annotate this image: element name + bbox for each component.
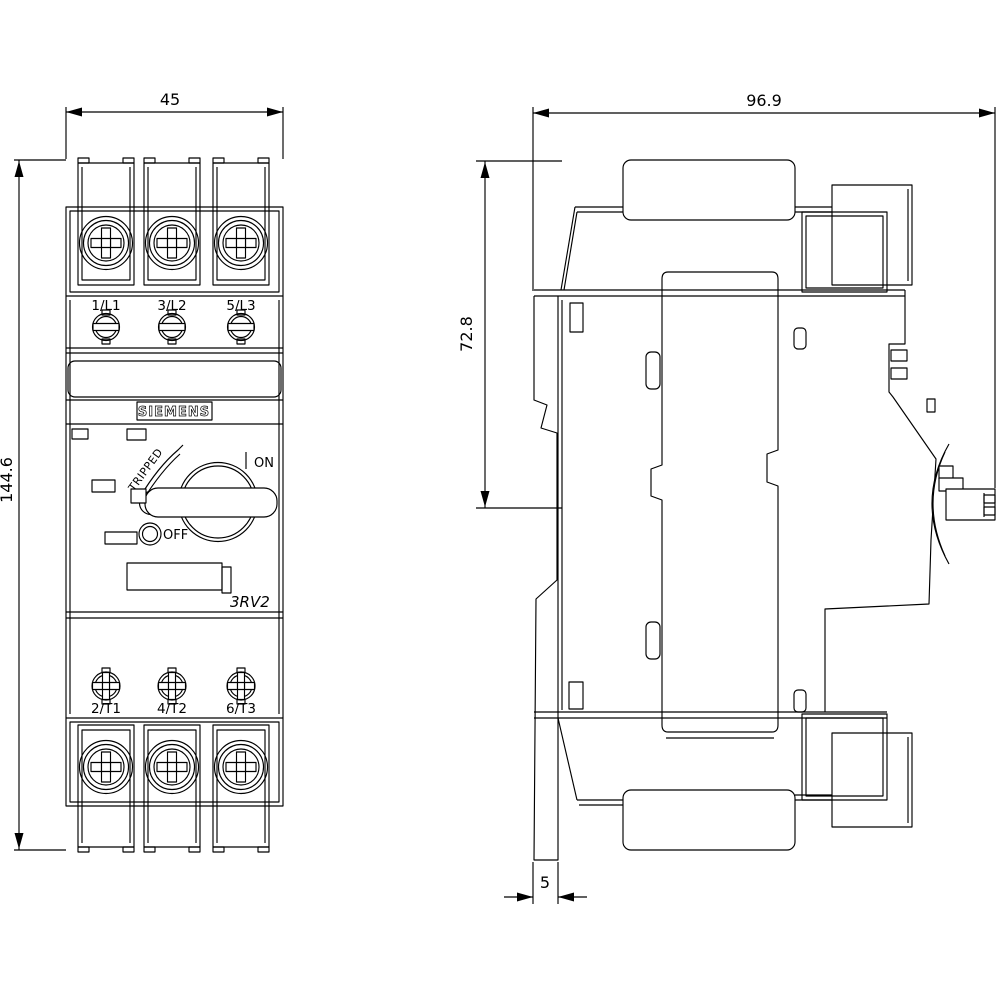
rotary-switch: TRIPPED ON OFF [125,445,277,545]
rating-label-plate [127,563,222,590]
side-view: 96.9 72.8 [457,91,995,904]
terminal-screw-l2 [146,217,199,270]
terminal-label-3L2: 3/L2 [157,298,186,314]
terminal-screw-l1 [80,217,133,270]
knob-handle[interactable] [145,488,277,517]
brand-plate: SIEMENS [137,402,212,420]
terminal-screw-t1 [80,741,133,794]
front-top-terminal-block [66,158,283,296]
terminal-label-2T1: 2/T1 [91,701,121,717]
terminal-label-1L1: 1/L1 [91,298,120,314]
terminal-screw-l3 [215,217,268,270]
terminal-screw-t2 [146,741,199,794]
technical-drawing: 45 144.6 1/L1 3/L2 5/L3 [0,0,1000,1000]
side-right-face [825,296,936,712]
on-label: ON [254,456,274,471]
model-label: 3RV2 [230,593,270,611]
clamp-screw-top-2 [159,310,186,344]
dimension-drawing-page: 45 144.6 1/L1 3/L2 5/L3 [0,0,1000,1000]
terminal-label-4T2: 4/T2 [157,701,187,717]
side-upper-assembly [534,160,912,296]
clamp-screw-bottom-1 [92,668,120,704]
clamp-screw-top-1 [93,310,120,344]
front-height-dim-label: 144.6 [0,457,16,503]
side-upper-depth-dim-label: 72.8 [457,316,476,352]
front-width-dimension: 45 [66,90,283,159]
rail-plate-dim-label: 5 [540,873,550,892]
side-slots [569,303,806,712]
clamp-screw-bottom-3 [227,668,255,704]
din-rail-plate [534,296,562,860]
clamp-screw-bottom-2 [158,668,186,704]
side-knob-profile [932,444,995,564]
front-width-dim-label: 45 [160,90,180,109]
off-label: OFF [163,528,188,543]
terminal-label-5L3: 5/L3 [226,298,255,314]
front-view: 45 144.6 1/L1 3/L2 5/L3 [0,90,283,852]
side-center-pillar [651,272,778,732]
clamp-screw-top-3 [228,310,255,344]
brand-label: SIEMENS [138,405,210,420]
front-bottom-terminal-block [66,718,283,852]
side-depth-dim-label: 96.9 [746,91,782,110]
rail-plate-dimension: 5 [504,862,587,904]
terminal-screw-t3 [215,741,268,794]
side-bottom-terminal [623,790,795,850]
terminal-label-6T3: 6/T3 [226,701,256,717]
front-height-dimension: 144.6 [0,160,66,850]
side-upper-depth-dimension: 72.8 [457,161,562,508]
side-lower-assembly [534,712,912,850]
side-top-terminal [623,160,795,220]
